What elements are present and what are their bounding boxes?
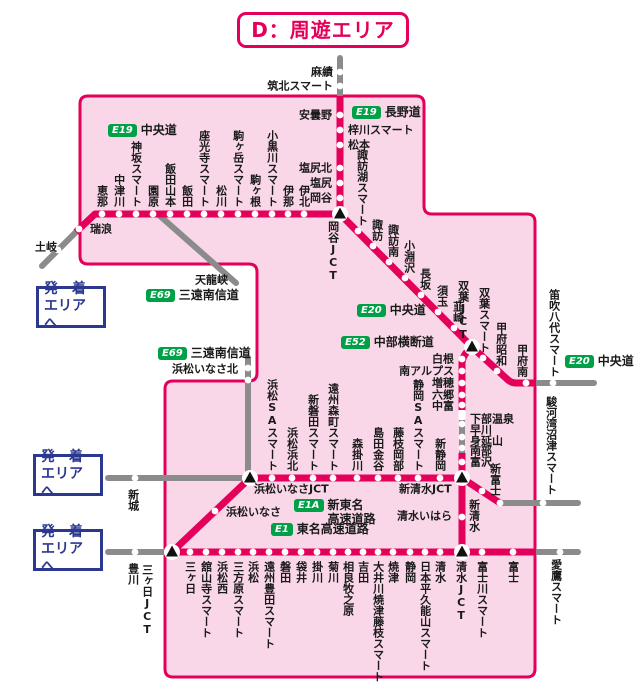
station-dot — [201, 211, 208, 218]
station-label: 飯田山本 — [164, 163, 175, 207]
station-dot — [459, 421, 466, 428]
station-label: 伊那 — [282, 185, 293, 207]
station-label: 静岡 — [404, 561, 415, 583]
station-label: 塩尻北 — [299, 162, 332, 173]
station-dot — [314, 549, 321, 556]
route-name: 中央道 — [598, 355, 634, 369]
station-dot — [395, 475, 402, 482]
station-label: 恵那 — [96, 185, 107, 207]
route-name: 中央道 — [141, 124, 177, 138]
station-label: 三ヶ日JCT — [141, 564, 152, 636]
station-dot — [337, 83, 344, 90]
station-dot — [422, 549, 429, 556]
route-number-tag: E69 — [146, 289, 175, 302]
station-dot — [459, 392, 466, 399]
station-label: 双葉スマート — [478, 287, 489, 353]
station-label: 新清水 — [468, 499, 479, 532]
station-dot — [235, 549, 242, 556]
station-label: 静岡SAスマート — [412, 379, 423, 471]
station-label: 新清水JCT — [399, 483, 452, 494]
route-name: 三遠南信道 — [191, 347, 251, 361]
station-dot — [250, 549, 257, 556]
station-dot — [459, 459, 466, 466]
station-label: 南アルプス — [399, 365, 454, 376]
route-number-tag: E20 — [565, 355, 594, 368]
station-dot — [459, 514, 466, 521]
route-name: 中央道 — [390, 304, 426, 318]
station-label: 日本平久能山スマート — [419, 561, 430, 671]
touring-area-map: 恵那中津川神坂スマート園原飯田山本飯田座光寺スマート松川駒ヶ岳スマート駒ヶ根小黒… — [0, 0, 640, 695]
station-dot — [523, 380, 530, 387]
station-dot — [435, 309, 442, 316]
station-label: 浜松いなさ — [226, 506, 281, 517]
station-label: 清水JCT — [455, 561, 466, 622]
station-dot — [245, 365, 252, 372]
station-label: 諏訪南 — [387, 224, 398, 257]
station-dot — [355, 228, 362, 235]
tollgate-marker — [459, 410, 466, 420]
station-dot — [219, 549, 226, 556]
route-name-badge: E20中央道 — [357, 304, 426, 318]
route-name-line: 中部横断道 — [374, 336, 434, 350]
area-link-line1: 発 着 — [41, 449, 95, 467]
station-dot — [437, 475, 444, 482]
route-number-tag: E1 — [271, 523, 293, 536]
route-name: 中部横断道 — [374, 336, 434, 350]
station-label: 安曇野 — [299, 109, 332, 120]
station-label: 新磐田スマート — [307, 394, 318, 471]
to-departure-arrival-area-link[interactable]: 発 着エリアへ — [33, 529, 103, 571]
station-label: 岡谷JCT — [327, 221, 338, 282]
route-map-svg — [0, 0, 640, 695]
station-label: 浜松いなさJCT — [254, 483, 329, 494]
station-label: 島田金谷 — [372, 427, 383, 471]
area-link-line1: 発 着 — [44, 281, 98, 299]
station-dot — [298, 549, 305, 556]
station-label: 麻績 — [311, 66, 333, 77]
route-name: 三遠南信道 — [179, 289, 239, 303]
station-dot — [310, 475, 317, 482]
station-label: 遠州豊田スマート — [263, 561, 274, 649]
page-title: D：周遊エリア — [237, 12, 409, 48]
station-dot — [337, 165, 344, 172]
station-dot — [497, 500, 504, 507]
station-label: 増穂 — [432, 377, 454, 388]
station-label: 清水 — [434, 561, 445, 583]
station-label: 吉田 — [357, 561, 368, 583]
station-dot — [407, 549, 414, 556]
station-dot — [360, 549, 367, 556]
station-label: 浜松浜北 — [286, 427, 297, 471]
station-label: 菊川 — [327, 561, 338, 583]
station-dot — [557, 549, 564, 556]
route-name-badge: E19中央道 — [108, 124, 177, 138]
route-number-tag: E19 — [108, 124, 137, 137]
route-number-tag: E19 — [352, 106, 381, 119]
station-label: 神坂スマート — [130, 141, 141, 207]
station-label: 伊北 — [298, 185, 309, 207]
route-name-line: 新東名 — [328, 499, 376, 513]
station-label: 駒ヶ岳スマート — [232, 130, 243, 207]
station-label: 笛吹八代スマート — [548, 289, 559, 377]
station-label: 須玉 — [436, 285, 447, 307]
station-dot — [330, 475, 337, 482]
station-label: 飯田 — [181, 185, 192, 207]
route-name-line: 中央道 — [141, 124, 177, 138]
station-label: 浜松 — [247, 561, 258, 583]
station-dot — [437, 549, 444, 556]
station-label: 富沢 — [470, 456, 492, 467]
route-name-line: 長野道 — [385, 106, 421, 120]
station-dot — [459, 380, 466, 387]
station-dot — [479, 549, 486, 556]
station-label: 甲府昭和 — [495, 322, 506, 366]
station-label: 遠州森町スマート — [327, 383, 338, 471]
station-dot — [337, 142, 344, 149]
station-label: 長坂 — [419, 268, 430, 290]
area-link-line2: エリアへ — [44, 298, 98, 333]
station-dot — [132, 549, 139, 556]
station-label: 座光寺スマート — [198, 130, 209, 207]
station-label: 筑北スマート — [267, 80, 333, 91]
station-label: 新静岡 — [434, 438, 445, 471]
route-number-tag: E69 — [158, 347, 187, 360]
station-dot — [540, 500, 547, 507]
route-name-badge: E20中央道 — [565, 355, 634, 369]
route-name-line: 中央道 — [598, 355, 634, 369]
station-label: 三方原スマート — [232, 561, 243, 638]
station-dot — [187, 549, 194, 556]
route-name-badge: E52中部横断道 — [341, 336, 434, 350]
station-label: 豊川 — [127, 563, 138, 585]
station-dot — [245, 377, 252, 384]
station-label: 小黒川スマート — [266, 130, 277, 207]
station-dot — [402, 275, 409, 282]
station-dot — [510, 549, 517, 556]
station-label: 瑞浪 — [90, 223, 112, 234]
station-label: 富士川スマート — [476, 561, 487, 638]
station-dot — [337, 195, 344, 202]
station-label: 舘山寺スマート — [200, 561, 211, 638]
station-label: 森掛川 — [351, 438, 362, 471]
station-dot — [459, 434, 466, 441]
station-label: 浜松SAスマート — [266, 379, 277, 471]
station-dot — [301, 211, 308, 218]
station-label: 松本 — [348, 139, 370, 150]
station-label: 諏訪 — [371, 219, 382, 241]
station-dot — [337, 69, 344, 76]
station-label: 甲府南 — [516, 344, 527, 377]
route-name-line: 三遠南信道 — [191, 347, 251, 361]
station-dot — [150, 211, 157, 218]
area-link-line1: 発 着 — [41, 524, 95, 542]
station-dot — [99, 211, 106, 218]
station-label: 双葉JCT — [457, 280, 468, 341]
station-dot — [480, 355, 487, 362]
station-label: 松川 — [215, 185, 226, 207]
station-dot — [415, 475, 422, 482]
station-dot — [418, 292, 425, 299]
station-label: 愛鷹スマート — [550, 559, 561, 625]
station-dot — [375, 475, 382, 482]
station-label: 大井川焼津藤枝スマート — [372, 561, 383, 682]
station-label: 焼津 — [387, 561, 398, 583]
station-label: 梓川スマート — [348, 124, 414, 135]
station-label: 袋井 — [295, 561, 306, 583]
station-label: 諏訪湖スマート — [356, 149, 367, 226]
route-number-tag: E20 — [357, 304, 386, 317]
station-dot — [375, 549, 382, 556]
to-departure-arrival-area-link[interactable]: 発 着エリアへ — [36, 286, 106, 328]
station-label: 駿河湾沼津スマート — [545, 396, 556, 495]
to-departure-arrival-area-link[interactable]: 発 着エリアへ — [33, 454, 103, 496]
station-dot — [459, 356, 466, 363]
station-label: 三ヶ日 — [184, 561, 195, 594]
station-dot — [76, 226, 83, 233]
station-label: 新城 — [127, 489, 138, 511]
station-label: 相良牧之原 — [342, 561, 353, 616]
route-name-badge: E69三遠南信道 — [158, 347, 251, 361]
station-dot — [212, 508, 219, 515]
station-dot — [269, 211, 276, 218]
station-label: 磐田 — [279, 561, 290, 583]
route-name-line: 東名高速道路 — [297, 523, 369, 537]
station-dot — [184, 211, 191, 218]
station-dot — [203, 549, 210, 556]
station-dot — [370, 243, 377, 250]
route-name-badge: E1東名高速道路 — [271, 523, 369, 537]
station-dot — [252, 211, 259, 218]
station-label: 中津川 — [113, 174, 124, 207]
station-label: 藤枝岡部 — [392, 427, 403, 471]
station-label: 浜松いなさ北 — [172, 363, 238, 374]
area-link-line2: エリアへ — [41, 466, 95, 501]
station-dot — [133, 211, 140, 218]
station-dot — [337, 180, 344, 187]
station-label: 白根 — [432, 353, 454, 364]
station-label: 園原 — [147, 185, 158, 207]
station-label: 天龍峡 — [195, 274, 228, 285]
station-dot — [479, 488, 486, 495]
station-dot — [282, 549, 289, 556]
station-dot — [167, 211, 174, 218]
station-label: 中富 — [432, 400, 454, 411]
route-name-badge: E19長野道 — [352, 106, 421, 120]
route-number-tag: E1A — [294, 499, 324, 512]
station-label: 清水いはら — [397, 510, 452, 521]
station-dot — [550, 380, 557, 387]
station-dot — [235, 211, 242, 218]
route-name: 東名高速道路 — [297, 523, 369, 537]
station-dot — [494, 368, 501, 375]
station-label: 小淵沢 — [403, 240, 414, 273]
station-label: 富士 — [507, 561, 518, 583]
station-dot — [345, 549, 352, 556]
station-dot — [459, 445, 466, 452]
station-dot — [266, 549, 273, 556]
route-name-line: 三遠南信道 — [179, 289, 239, 303]
area-link-line2: エリアへ — [41, 541, 95, 576]
station-dot — [390, 549, 397, 556]
station-label: 掛川 — [311, 561, 322, 583]
station-dot — [330, 549, 337, 556]
station-dot — [289, 475, 296, 482]
route-name-line: 中央道 — [390, 304, 426, 318]
station-dot — [459, 402, 466, 409]
route-name-badge: E69三遠南信道 — [146, 289, 239, 303]
station-dot — [285, 211, 292, 218]
station-label: 岡谷 — [310, 192, 332, 203]
route-name: 長野道 — [385, 106, 421, 120]
station-dot — [269, 475, 276, 482]
station-dot — [116, 211, 123, 218]
route-number-tag: E52 — [341, 336, 370, 349]
station-dot — [337, 127, 344, 134]
station-dot — [459, 368, 466, 375]
station-label: 土岐 — [35, 241, 57, 252]
station-dot — [337, 112, 344, 119]
station-label: 浜松西 — [216, 561, 227, 594]
station-dot — [132, 475, 139, 482]
station-label: 塩尻 — [310, 177, 332, 188]
station-dot — [354, 475, 361, 482]
station-dot — [386, 259, 393, 266]
station-label: 駒ヶ根 — [249, 174, 260, 207]
station-dot — [218, 211, 225, 218]
